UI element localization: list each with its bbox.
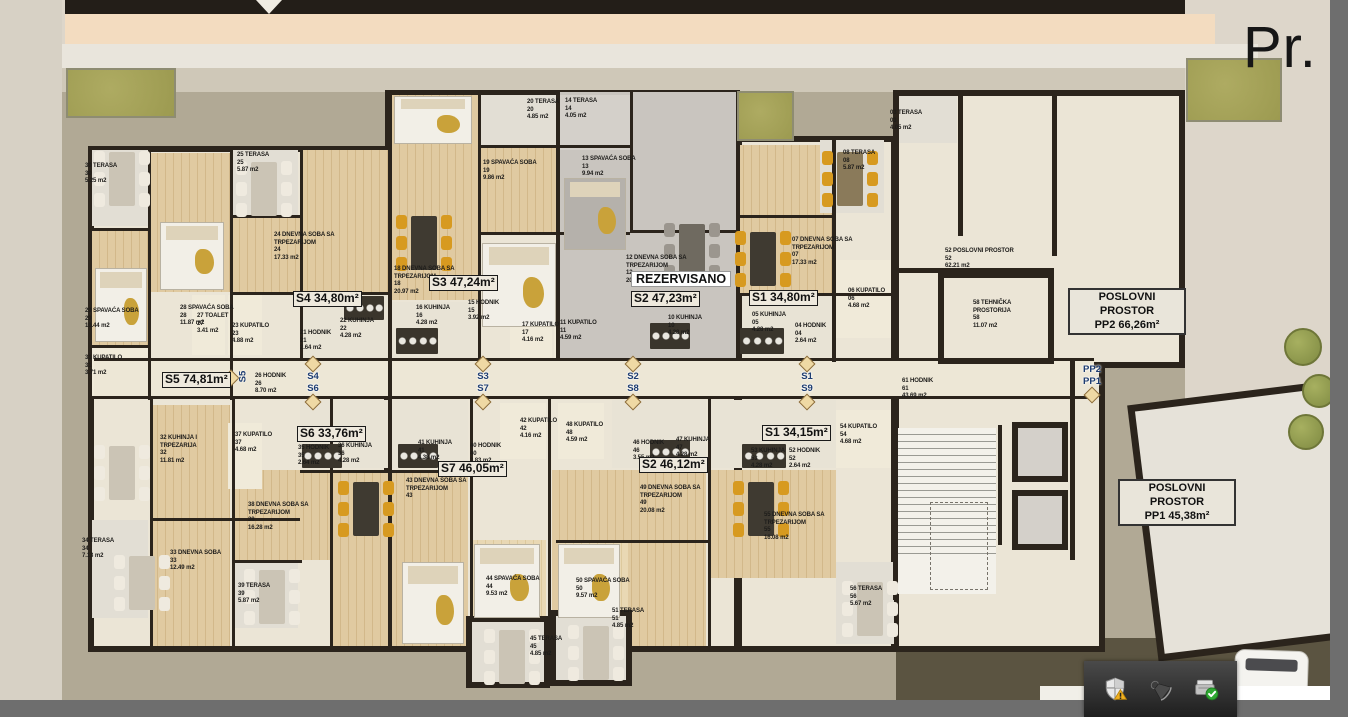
- chair: [709, 244, 720, 258]
- chair: [484, 650, 495, 664]
- bed: [95, 268, 147, 342]
- room-label-43: 43 DNEVNA SOBA SA TRPEZARIJOM43: [406, 478, 480, 501]
- chair: [139, 445, 150, 459]
- system-tray-flyout: [1084, 661, 1237, 717]
- corridor-marker-S3: S3S7: [467, 357, 499, 409]
- chair: [159, 555, 170, 569]
- chair: [281, 182, 292, 196]
- room-label-55: 55 DNEVNA SOBA SA TRPEZARIJOM5516.08 m2: [764, 512, 838, 542]
- chair: [338, 481, 349, 495]
- chair: [822, 172, 833, 186]
- room-label-39: 39 TERASA395.87 m2: [238, 583, 312, 606]
- room-label-04: 04 HODNIK042.64 m2: [795, 323, 869, 346]
- chair: [733, 481, 744, 495]
- chair: [244, 569, 255, 583]
- room-label-38: 38 DNEVNA SOBA SA TRPEZARIJOM3816.28 m2: [248, 502, 322, 532]
- dining-set: [116, 552, 168, 614]
- room-label-08: 08 TERASA085.87 m2: [843, 150, 917, 173]
- chair: [733, 523, 744, 537]
- bed: [564, 178, 626, 250]
- up-arrow-icon: [475, 356, 492, 373]
- unit-area-tag: S1 34,15m²: [762, 425, 831, 441]
- chair: [568, 667, 579, 681]
- chair: [780, 231, 791, 245]
- unit-area-tag: S1 34,80m²: [749, 290, 818, 306]
- chair: [780, 252, 791, 266]
- bed: [402, 562, 464, 644]
- down-arrow-icon: [1084, 386, 1101, 403]
- room-label-31: 31 KUPATILO313.71 m2: [85, 355, 159, 378]
- room-label-22: 22 KUHINJA224.28 m2: [340, 318, 414, 341]
- chair: [778, 481, 789, 495]
- chair: [114, 576, 125, 590]
- walkway-band: [62, 44, 1258, 68]
- room-label-29: 29 SPAVAĆA SOBA2910.44 m2: [85, 308, 159, 331]
- chair: [529, 671, 540, 685]
- chair: [236, 182, 247, 196]
- chair: [780, 273, 791, 287]
- dining-set: [737, 228, 789, 290]
- chair: [733, 502, 744, 516]
- bed: [394, 96, 472, 144]
- chair: [441, 236, 452, 250]
- chair: [709, 223, 720, 237]
- unit-area-tag: S4 34,80m²: [293, 291, 362, 307]
- corridor-marker-S1: S1S9: [791, 357, 823, 409]
- room-label-52p: 52 POSLOVNI PROSTOR5262.21 m2: [945, 248, 1019, 271]
- marker-up-label: S4: [307, 371, 319, 383]
- corridor-marker-S2: S2S8: [617, 357, 649, 409]
- printer-ready-icon[interactable]: [1193, 676, 1219, 702]
- room-label-30: 30 TERASA305.25 m2: [85, 163, 159, 186]
- security-shield-warning-icon[interactable]: [1102, 676, 1128, 702]
- room-label-44: 44 SPAVAĆA SOBA449.53 m2: [486, 576, 560, 599]
- chair: [735, 273, 746, 287]
- plan-block: [300, 150, 388, 292]
- page-whitespace: [1238, 686, 1330, 700]
- room-label-51: 51 TERASA514.85 m2: [612, 608, 686, 631]
- plan-block: [1052, 96, 1057, 256]
- plan-block: [736, 215, 836, 218]
- unit-area-tag: S6 33,76m²: [297, 426, 366, 442]
- chair: [887, 623, 898, 637]
- chair: [822, 193, 833, 207]
- chair: [94, 466, 105, 480]
- room-label-15: 15 HODNIK153.92 m2: [468, 300, 542, 323]
- corridor-marker-PP2: PP2PP1: [1076, 364, 1108, 402]
- plan-block: [478, 145, 630, 148]
- unit-area-tag: S5 74,81m²: [162, 372, 231, 388]
- commercial-area-tag: POSLOVNI PROSTORPP2 66,26m²: [1068, 288, 1186, 335]
- room-label-24: 24 DNEVNA SOBA SA TRPEZARIJOM2417.33 m2: [274, 232, 348, 262]
- marker-up-label: S2: [627, 371, 639, 383]
- chair: [159, 597, 170, 611]
- chair: [613, 667, 624, 681]
- tree-icon: [1288, 414, 1324, 450]
- bed: [160, 222, 224, 290]
- corridor-marker-S4: S4S6: [297, 357, 329, 409]
- room-label-52: 52 HODNIK522.64 m2: [789, 448, 863, 471]
- plan-block: [1018, 428, 1062, 476]
- plan-block: [470, 398, 473, 620]
- chair: [94, 487, 105, 501]
- chair: [236, 203, 247, 217]
- plan-block: [930, 502, 988, 590]
- chair: [396, 215, 407, 229]
- plan-block: [998, 425, 1002, 545]
- room-label-25: 25 TERASA255.87 m2: [237, 152, 311, 175]
- room-label-58: 58 TEHNIČKA PROSTORIJA5811.07 m2: [973, 300, 1047, 330]
- chair: [664, 223, 675, 237]
- down-arrow-icon: [305, 393, 322, 410]
- up-arrow-icon: [625, 356, 642, 373]
- chair: [484, 629, 495, 643]
- chair: [94, 193, 105, 207]
- chair: [383, 502, 394, 516]
- marker-up-label: S1: [801, 371, 813, 383]
- down-arrow-icon: [475, 393, 492, 410]
- chair: [867, 172, 878, 186]
- dining-set: [340, 478, 392, 540]
- floor-plan-viewer: 30 TERASA305.25 m228 SPAVAĆA SOBA2811.87…: [0, 0, 1348, 717]
- unit-area-tag: S2 46,12m²: [639, 457, 708, 473]
- chair: [842, 623, 853, 637]
- room-label-03: 03 TERASA034.05 m2: [890, 110, 964, 133]
- chair: [735, 252, 746, 266]
- reserved-label: REZERVISANO: [631, 271, 731, 287]
- plan-block: [556, 540, 708, 543]
- chair: [867, 193, 878, 207]
- dining-table: [750, 232, 776, 286]
- chair: [281, 203, 292, 217]
- dining-table: [109, 446, 135, 500]
- room-label-10: 10 KUHINJA104.28 m2: [668, 315, 742, 338]
- room-label-13: 13 SPAVAĆA SOBA139.94 m2: [582, 156, 656, 179]
- chair: [139, 193, 150, 207]
- room-label-19: 19 SPAVAĆA SOBA199.86 m2: [483, 160, 557, 183]
- plan-block: [388, 92, 392, 652]
- chair: [383, 481, 394, 495]
- plan-block: [88, 228, 148, 231]
- plan-block: [1018, 496, 1062, 544]
- room-label-23: 23 KUPATILO234.88 m2: [232, 323, 306, 346]
- chair: [338, 523, 349, 537]
- chair: [613, 646, 624, 660]
- floor-plan-image[interactable]: 30 TERASA305.25 m228 SPAVAĆA SOBA2811.87…: [62, 0, 1330, 700]
- room-label-32: 32 KUHINJA I TRPEZARIJA3211.81 m2: [160, 435, 234, 465]
- chair: [289, 569, 300, 583]
- plan-block: [737, 91, 794, 141]
- viewer-left-margin: [0, 0, 62, 700]
- chair: [139, 466, 150, 480]
- upper-building-edge: [65, 0, 1185, 14]
- room-label-48: 48 KUPATILO484.59 m2: [566, 422, 640, 445]
- chair: [114, 597, 125, 611]
- chair: [159, 576, 170, 590]
- plan-block: [66, 68, 176, 118]
- dining-set: [398, 212, 450, 274]
- terrace-band: [65, 14, 1215, 44]
- dining-set: [96, 442, 148, 504]
- room-label-33: 33 DNEVNA SOBA3312.49 m2: [170, 550, 244, 573]
- chair: [441, 215, 452, 229]
- chair: [383, 523, 394, 537]
- chair: [735, 231, 746, 245]
- chair: [289, 611, 300, 625]
- plan-block: [1070, 360, 1075, 560]
- chair: [244, 611, 255, 625]
- chair: [338, 502, 349, 516]
- room-label-34: 34 TERASA347.13 m2: [82, 538, 156, 561]
- floor-name-label: Pr.: [1243, 14, 1317, 81]
- dining-table: [411, 216, 437, 270]
- dining-table: [499, 630, 525, 684]
- plan-block: [88, 345, 148, 348]
- chair: [484, 671, 495, 685]
- tree-icon: [1302, 374, 1330, 408]
- marker-up-label: PP2: [1083, 364, 1101, 376]
- dining-table: [129, 556, 155, 610]
- unit-area-tag: S7 46,05m²: [438, 461, 507, 477]
- car-windshield: [1245, 658, 1297, 672]
- down-arrow-icon: [625, 393, 642, 410]
- tree-icon: [1284, 328, 1322, 366]
- chair: [396, 236, 407, 250]
- plan-block: [230, 148, 233, 400]
- room-label-07: 07 DNEVNA SOBA SA TRPEZARIJOM0717.33 m2: [792, 237, 866, 267]
- room-label-56: 56 TERASA565.67 m2: [850, 586, 924, 609]
- chair: [139, 487, 150, 501]
- up-arrow-icon: [799, 356, 816, 373]
- down-arrow-icon: [799, 393, 816, 410]
- dining-table: [353, 482, 379, 536]
- room-label-54: 54 KUPATILO544.68 m2: [840, 424, 914, 447]
- chair: [94, 445, 105, 459]
- room-label-45: 45 TERASA454.85 m2: [530, 636, 604, 659]
- chair: [822, 151, 833, 165]
- room-label-49: 49 DNEVNA SOBA SA TRPEZARIJOM4920.08 m2: [640, 485, 714, 515]
- marker-up-label: S3: [477, 371, 489, 383]
- room-label-50: 50 SPAVAĆA SOBA509.57 m2: [576, 578, 650, 601]
- room-label-36: 36 KUHINJA364.28 m2: [338, 443, 412, 466]
- room-label-61: 61 HODNIK6143.69 m2: [902, 378, 976, 401]
- room-label-11: 11 KUPATILO114.59 m2: [560, 320, 634, 343]
- speaker-icon[interactable]: [1147, 676, 1173, 702]
- unit-area-tag: S3 47,24m²: [429, 275, 498, 291]
- marker-side-label: S5: [237, 371, 248, 383]
- up-arrow-icon: [305, 356, 322, 373]
- room-label-06: 06 KUPATILO064.68 m2: [848, 288, 922, 311]
- unit-area-tag: S2 47,23m²: [631, 291, 700, 307]
- room-label-14: 14 TERASA144.05 m2: [565, 98, 639, 121]
- commercial-area-tag: POSLOVNI PROSTORPP1 45,38m²: [1118, 479, 1236, 526]
